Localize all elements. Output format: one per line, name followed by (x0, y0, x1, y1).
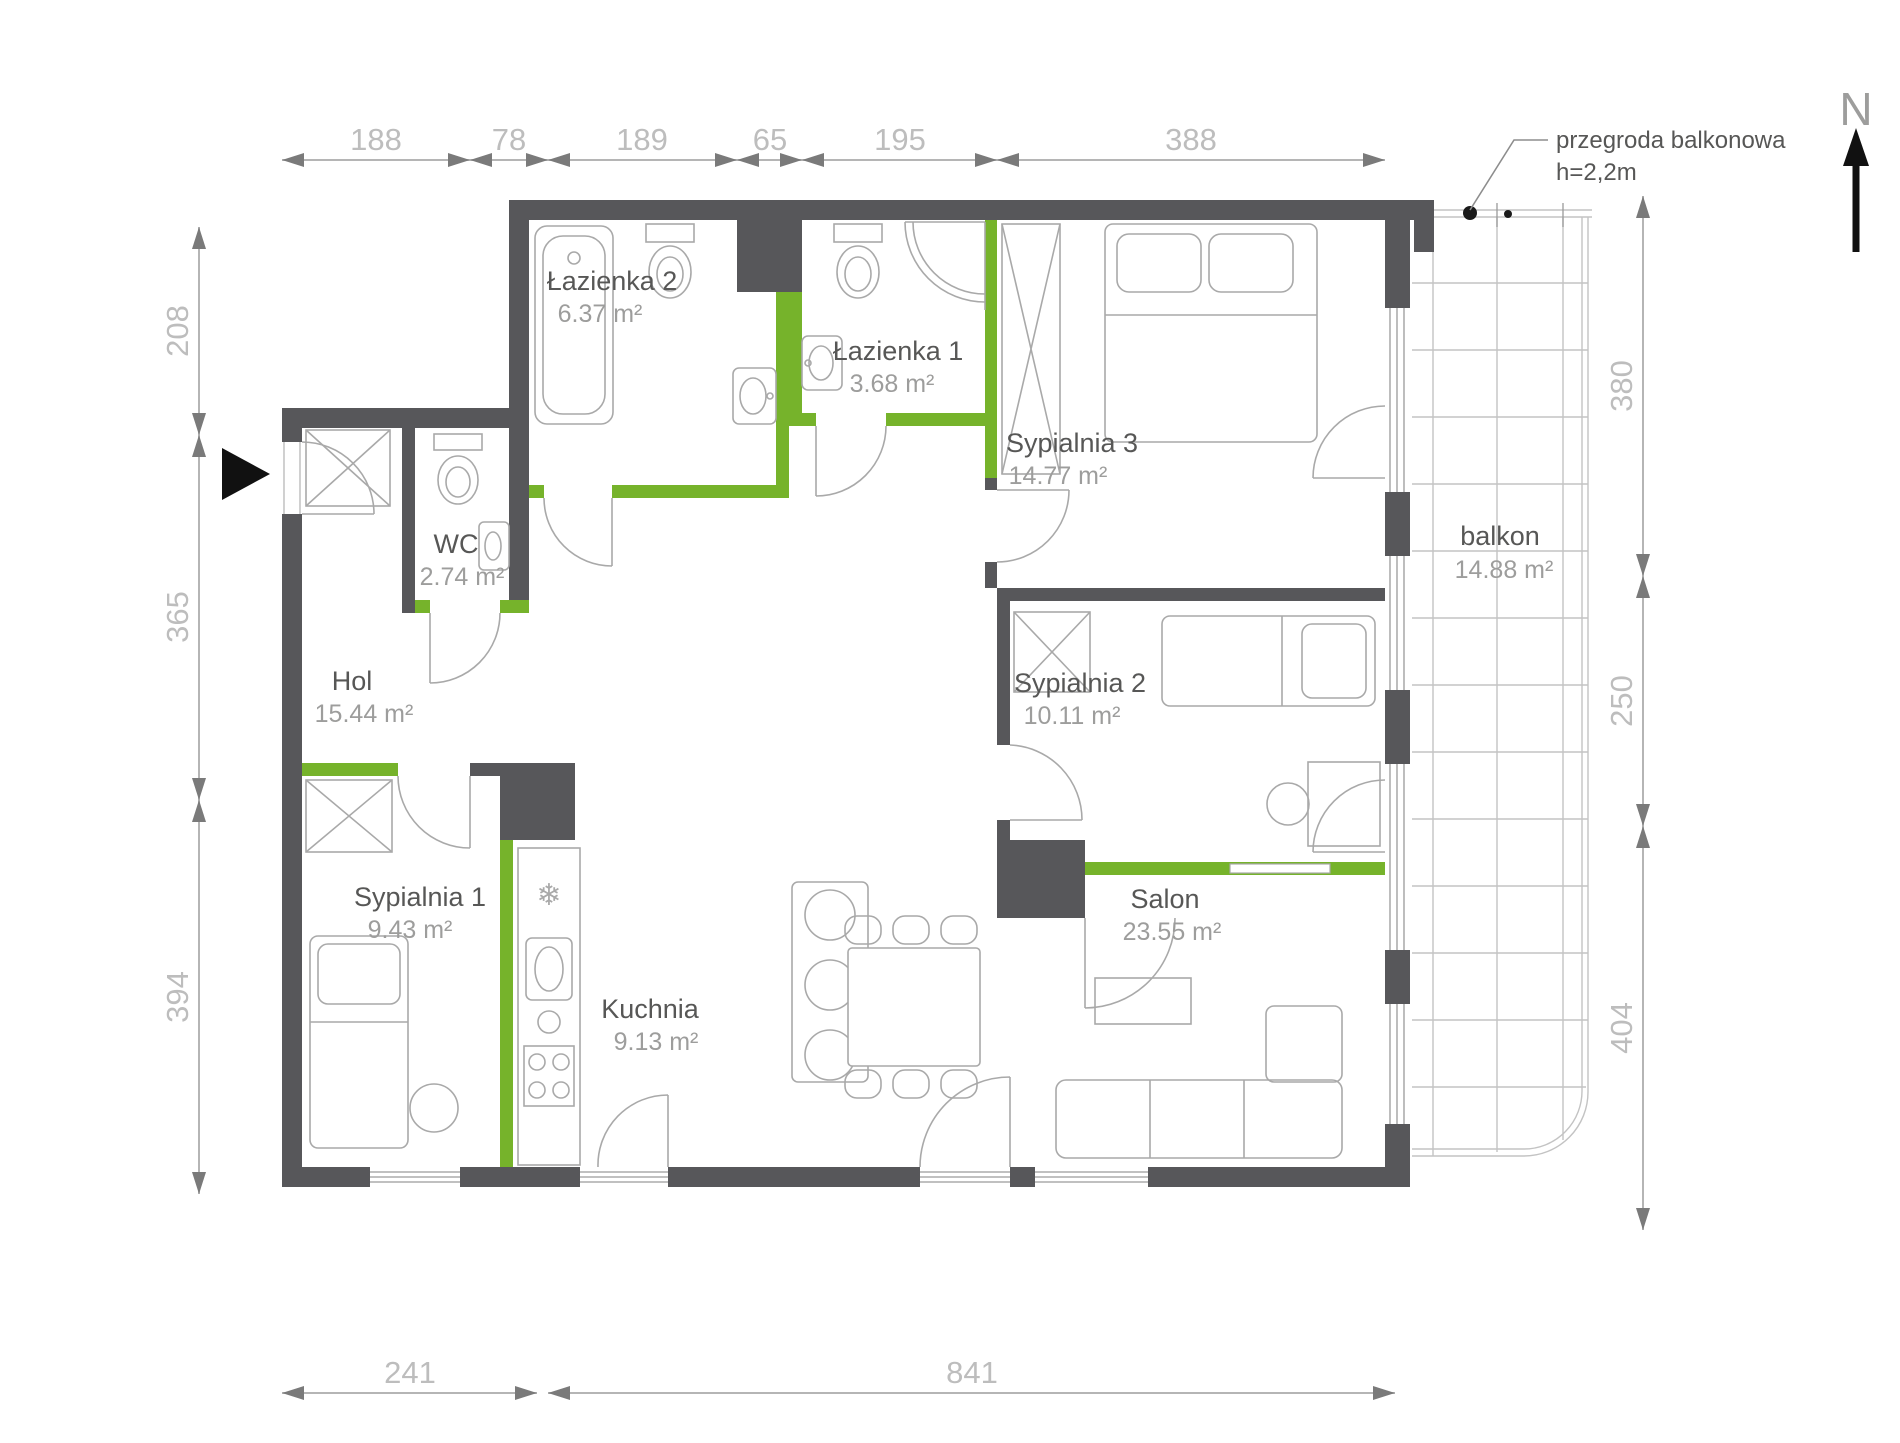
sypialnia3-balcony-door-swing (1313, 406, 1385, 478)
svg-text:Hol: Hol (332, 666, 373, 696)
svg-text:14.88 m²: 14.88 m² (1455, 556, 1554, 584)
room-label-salon: Salon 23.55 m² (1123, 884, 1222, 946)
dim-right-0: 380 (1604, 360, 1639, 412)
stove-symbol (524, 1046, 574, 1106)
dim-top-1: 78 (492, 122, 526, 157)
balcony-top-edge (1434, 210, 1592, 217)
dim-left-2: 394 (160, 971, 195, 1023)
svg-text:10.11 m²: 10.11 m² (1024, 702, 1121, 730)
fridge-icon: ❄ (536, 879, 561, 912)
svg-text:23.55 m²: 23.55 m² (1123, 918, 1222, 946)
lazienka2-door-swing (544, 498, 612, 566)
coffee-table-symbol (1095, 978, 1191, 1024)
svg-text:9.43 m²: 9.43 m² (368, 916, 453, 944)
sofa-symbol (1056, 1006, 1342, 1158)
dim-bottom-0: 241 (384, 1355, 436, 1390)
wall-sypialnia2-left-a (997, 601, 1010, 745)
svg-text:Łazienka 1: Łazienka 1 (833, 336, 964, 366)
room-label-balkon: balkon 14.88 m² (1455, 521, 1554, 584)
entrance-arrow-marker (222, 448, 270, 500)
svg-text:Łazienka 2: Łazienka 2 (547, 266, 678, 296)
salon-balcony-door-swing (1313, 780, 1385, 852)
dim-right-1: 250 (1604, 675, 1639, 727)
partition-lazienka2-right (776, 292, 789, 498)
dim-right-2: 404 (1604, 1002, 1639, 1054)
wall-top-right-stub (1414, 220, 1434, 252)
partition-kitchen-left (500, 840, 513, 1167)
svg-text:WC: WC (434, 529, 479, 559)
svg-text:14.77 m²: 14.77 m² (1009, 462, 1108, 490)
room-label-kuchnia: Kuchnia 9.13 m² (601, 994, 700, 1056)
balcony (1412, 203, 1592, 1156)
partition-sypialnia1-top (302, 763, 398, 776)
sypialnia2-door-swing (1010, 745, 1082, 820)
toilet-wc-symbol (434, 434, 482, 504)
dimensions-right: 380 250 404 (1604, 196, 1650, 1230)
svg-text:9.13 m²: 9.13 m² (614, 1028, 699, 1056)
partition-lazienka2-bottom-a (529, 485, 544, 498)
dim-top-4: 195 (874, 122, 926, 157)
dimensions-bottom: 241 841 (282, 1355, 1395, 1400)
desk-sypialnia2-symbol (1267, 762, 1380, 846)
partition-lazienka1-bottom-b (886, 413, 997, 426)
dim-top-0: 188 (350, 122, 402, 157)
svg-text:Kuchnia: Kuchnia (601, 994, 700, 1024)
north-arrow: N (1839, 83, 1872, 252)
balcony-outer-edge (1412, 217, 1588, 1156)
partition-lazienka1-right (985, 220, 997, 478)
bed-sypialnia3-symbol (1105, 224, 1317, 442)
partition-wc-bottom-a (415, 600, 430, 613)
wall-top (509, 200, 1434, 220)
annotation-line2: h=2,2m (1556, 159, 1637, 186)
svg-text:15.44 m²: 15.44 m² (315, 700, 414, 728)
wall-left-b (282, 514, 302, 1187)
toilet-lazienka1-symbol (834, 224, 882, 298)
svg-text:Sypialnia 3: Sypialnia 3 (1006, 428, 1138, 458)
partition-lazienka1-left (789, 292, 802, 426)
wall-sypialnia3-stub-a (985, 478, 997, 490)
bed-sypialnia1-symbol (310, 936, 458, 1148)
dining-table-symbol (845, 916, 980, 1098)
dimensions-left: 208 365 394 (160, 227, 206, 1194)
partition-lazienka2-bottom-b (612, 485, 776, 498)
svg-text:3.68 m²: 3.68 m² (850, 370, 935, 398)
room-label-sypialnia1: Sypialnia 1 9.43 m² (354, 882, 486, 944)
north-label: N (1839, 83, 1872, 135)
dim-left-0: 208 (160, 305, 195, 357)
dim-left-1: 365 (160, 591, 195, 643)
wall-sypialnia1-top-stub (470, 763, 500, 776)
partition-lazienka1-bottom-a (802, 413, 816, 426)
sypialnia1-door-swing (398, 776, 470, 848)
dimensions-top: 188 78 189 65 195 388 (282, 122, 1385, 167)
kitchen-counter-symbol: ❄ (518, 848, 580, 1165)
room-label-hol: Hol 15.44 m² (315, 666, 414, 728)
wc-door-swing (430, 613, 500, 683)
wall-wc-left (402, 428, 415, 613)
svg-text:Sypialnia 2: Sypialnia 2 (1014, 668, 1146, 698)
dim-top-3: 65 (753, 122, 787, 157)
wall-salon-syp2-block (997, 840, 1085, 918)
floor-plan-page: ❄ (0, 0, 1900, 1443)
svg-text:Sypialnia 1: Sypialnia 1 (354, 882, 486, 912)
svg-text:balkon: balkon (1460, 521, 1540, 551)
dim-top-5: 388 (1165, 122, 1217, 157)
wall-sypialnia3-stub-b (985, 562, 997, 588)
wall-left-horizontal (282, 408, 529, 428)
annotation-line1: przegroda balkonowa (1556, 127, 1786, 154)
wall-syp3-syp2-divider (997, 588, 1385, 601)
room-label-sypialnia3: Sypialnia 3 14.77 m² (1006, 428, 1138, 490)
dim-bottom-1: 841 (946, 1355, 998, 1390)
floor-plan: ❄ (0, 0, 1900, 1443)
dim-top-2: 189 (616, 122, 668, 157)
wall-left-a (282, 428, 302, 442)
annotation-leader-line (1470, 140, 1548, 210)
shower-symbol (905, 222, 985, 310)
chair-sypialnia1-symbol (410, 1084, 458, 1132)
salon-terrace-door-swing (920, 1077, 1010, 1167)
svg-text:6.37 m²: 6.37 m² (558, 300, 643, 328)
balcony-grid-horizontal (1412, 283, 1588, 1087)
wall-kitchen-pier (500, 763, 575, 840)
entrance-opening (284, 442, 300, 514)
kuchnia-terrace-door-swing (598, 1095, 668, 1167)
room-label-lazienka1: Łazienka 1 3.68 m² (833, 336, 964, 398)
sypialnia3-door-swing (997, 490, 1069, 562)
wardrobe-sypialnia1-symbol (306, 780, 392, 852)
wardrobe-hol-symbol (306, 430, 390, 506)
wall-shaft (737, 220, 802, 292)
balcony-partition-annotation: przegroda balkonowa h=2,2m (1470, 127, 1786, 210)
partition-wc-bottom-b (500, 600, 529, 613)
svg-text:2.74 m²: 2.74 m² (420, 563, 505, 591)
bed-sypialnia2-symbol (1162, 616, 1375, 706)
svg-text:Salon: Salon (1130, 884, 1199, 914)
balcony-partition-dot (1463, 206, 1477, 220)
partition-pocket-slot (1230, 864, 1330, 873)
lazienka1-door-swing (816, 426, 886, 496)
room-label-sypialnia2: Sypialnia 2 10.11 m² (1014, 668, 1146, 730)
balcony-grid-vertical (1433, 217, 1563, 1156)
sink-lazienka2-symbol (733, 368, 776, 424)
balcony-partition-dot-small (1504, 210, 1512, 218)
